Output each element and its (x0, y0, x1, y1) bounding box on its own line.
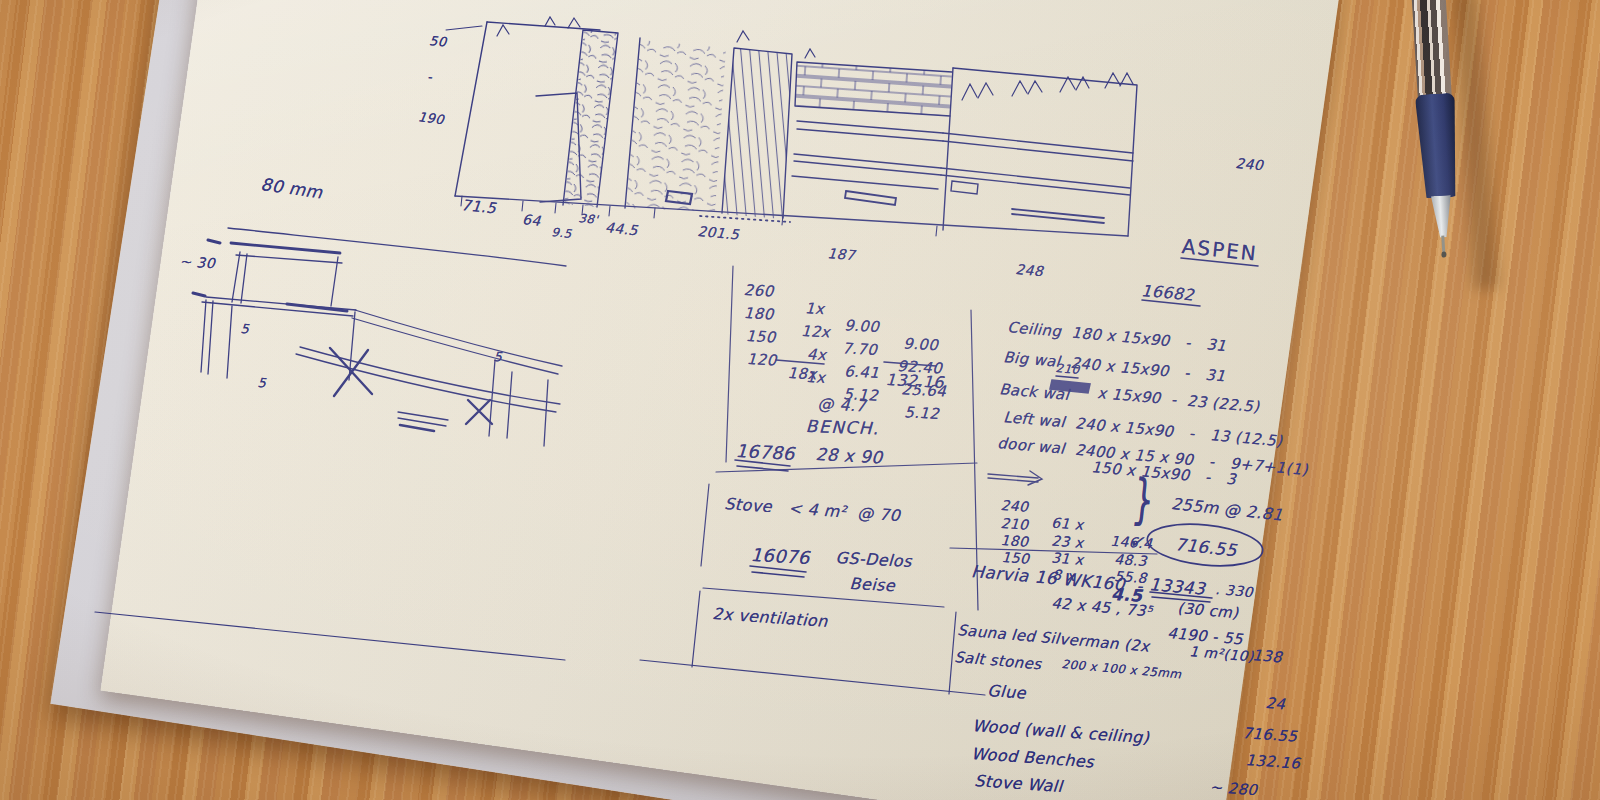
calc-cell: 9.00 (903, 336, 939, 353)
dim-64: 64 (522, 212, 542, 228)
bench-label: BENCH. (805, 418, 879, 438)
tally-cell: 61 x (1051, 516, 1084, 532)
item-harvia-price-suffix: . 330 (1215, 582, 1254, 599)
dim-44-5: 44.5 (605, 220, 639, 237)
bench-dim-30: ~ 30 (179, 254, 215, 270)
bench-dim-5b: 5 (257, 376, 267, 390)
calc-cell: 4x (807, 347, 827, 363)
item-glue-price: 24 (1265, 696, 1286, 712)
wood-total: 16682 (1141, 283, 1195, 304)
pen-grip (1415, 93, 1461, 199)
desk-surface: { "palette": {"ink": "#2d2f7c", "paper":… (0, 0, 1600, 800)
bench-perspective-drawing (193, 228, 566, 446)
calc-rate: @ 4.7 (817, 396, 866, 415)
calc-cell: 1x (805, 301, 825, 317)
dim-9-5: 9.5 (551, 226, 572, 240)
elevation-drawing (446, 17, 1137, 236)
bench-total: 16786 (735, 442, 795, 463)
dim-38: 38' (578, 212, 599, 226)
stove-model: GS-Delos (835, 550, 912, 570)
dim-50: 50 (429, 34, 448, 49)
sketch-layer: 50 - 190 80 mm 71.5 64 9.5 38' 44.5 201.… (0, 0, 1600, 800)
check-mark: ✓ (1128, 532, 1145, 552)
calc-cell: 5.12 (904, 405, 940, 422)
item-wood-wall-price: 716.55 (1242, 726, 1298, 745)
stove-price: 16076 (750, 546, 810, 567)
tally-cell: 31 x (1051, 551, 1084, 567)
item-glue-name: Glue (987, 683, 1026, 702)
item-stove-wall-price: ~ 280 (1209, 780, 1258, 798)
tally-cell: 23 x (1051, 534, 1084, 550)
calc-cell: 12x (801, 324, 831, 341)
dim-187: 187 (827, 246, 856, 262)
item-salt-stones-price: 138 (1252, 648, 1283, 666)
pen-barrel (1411, 0, 1452, 99)
dim-248: 248 (1015, 262, 1044, 278)
dim-190: 190 (417, 110, 445, 126)
calc-cell: 6.41 (844, 364, 880, 381)
dim-201-5: 201.5 (697, 224, 740, 242)
ink-drawing-svg (0, 0, 1600, 800)
pen-tip-ball (1441, 251, 1446, 257)
wall-row-back-wall-correction: 210 (1055, 362, 1080, 376)
tally-cell: 48.3 (1114, 552, 1148, 568)
stove-finish: Beise (849, 576, 895, 594)
dim-71-5: 71.5 (460, 198, 496, 217)
calc-cell: 7.70 (842, 341, 878, 358)
dim-240: 240 (1235, 156, 1264, 172)
bench-size: 28 x 90 (815, 446, 883, 466)
calc-cell: 120 (746, 352, 777, 369)
calc-cell: 9.00 (844, 318, 880, 335)
pen-cone (1428, 195, 1457, 239)
bench-dim-5c: 5 (493, 350, 503, 364)
calc-sum-qty: 18x (787, 366, 817, 383)
calc-sum-total: 132.16 (885, 372, 944, 391)
bench-dim-5a: 5 (240, 322, 250, 336)
item-harvia-price: 13343 (1149, 576, 1206, 598)
item-wood-benches-price: 132.16 (1245, 753, 1301, 772)
